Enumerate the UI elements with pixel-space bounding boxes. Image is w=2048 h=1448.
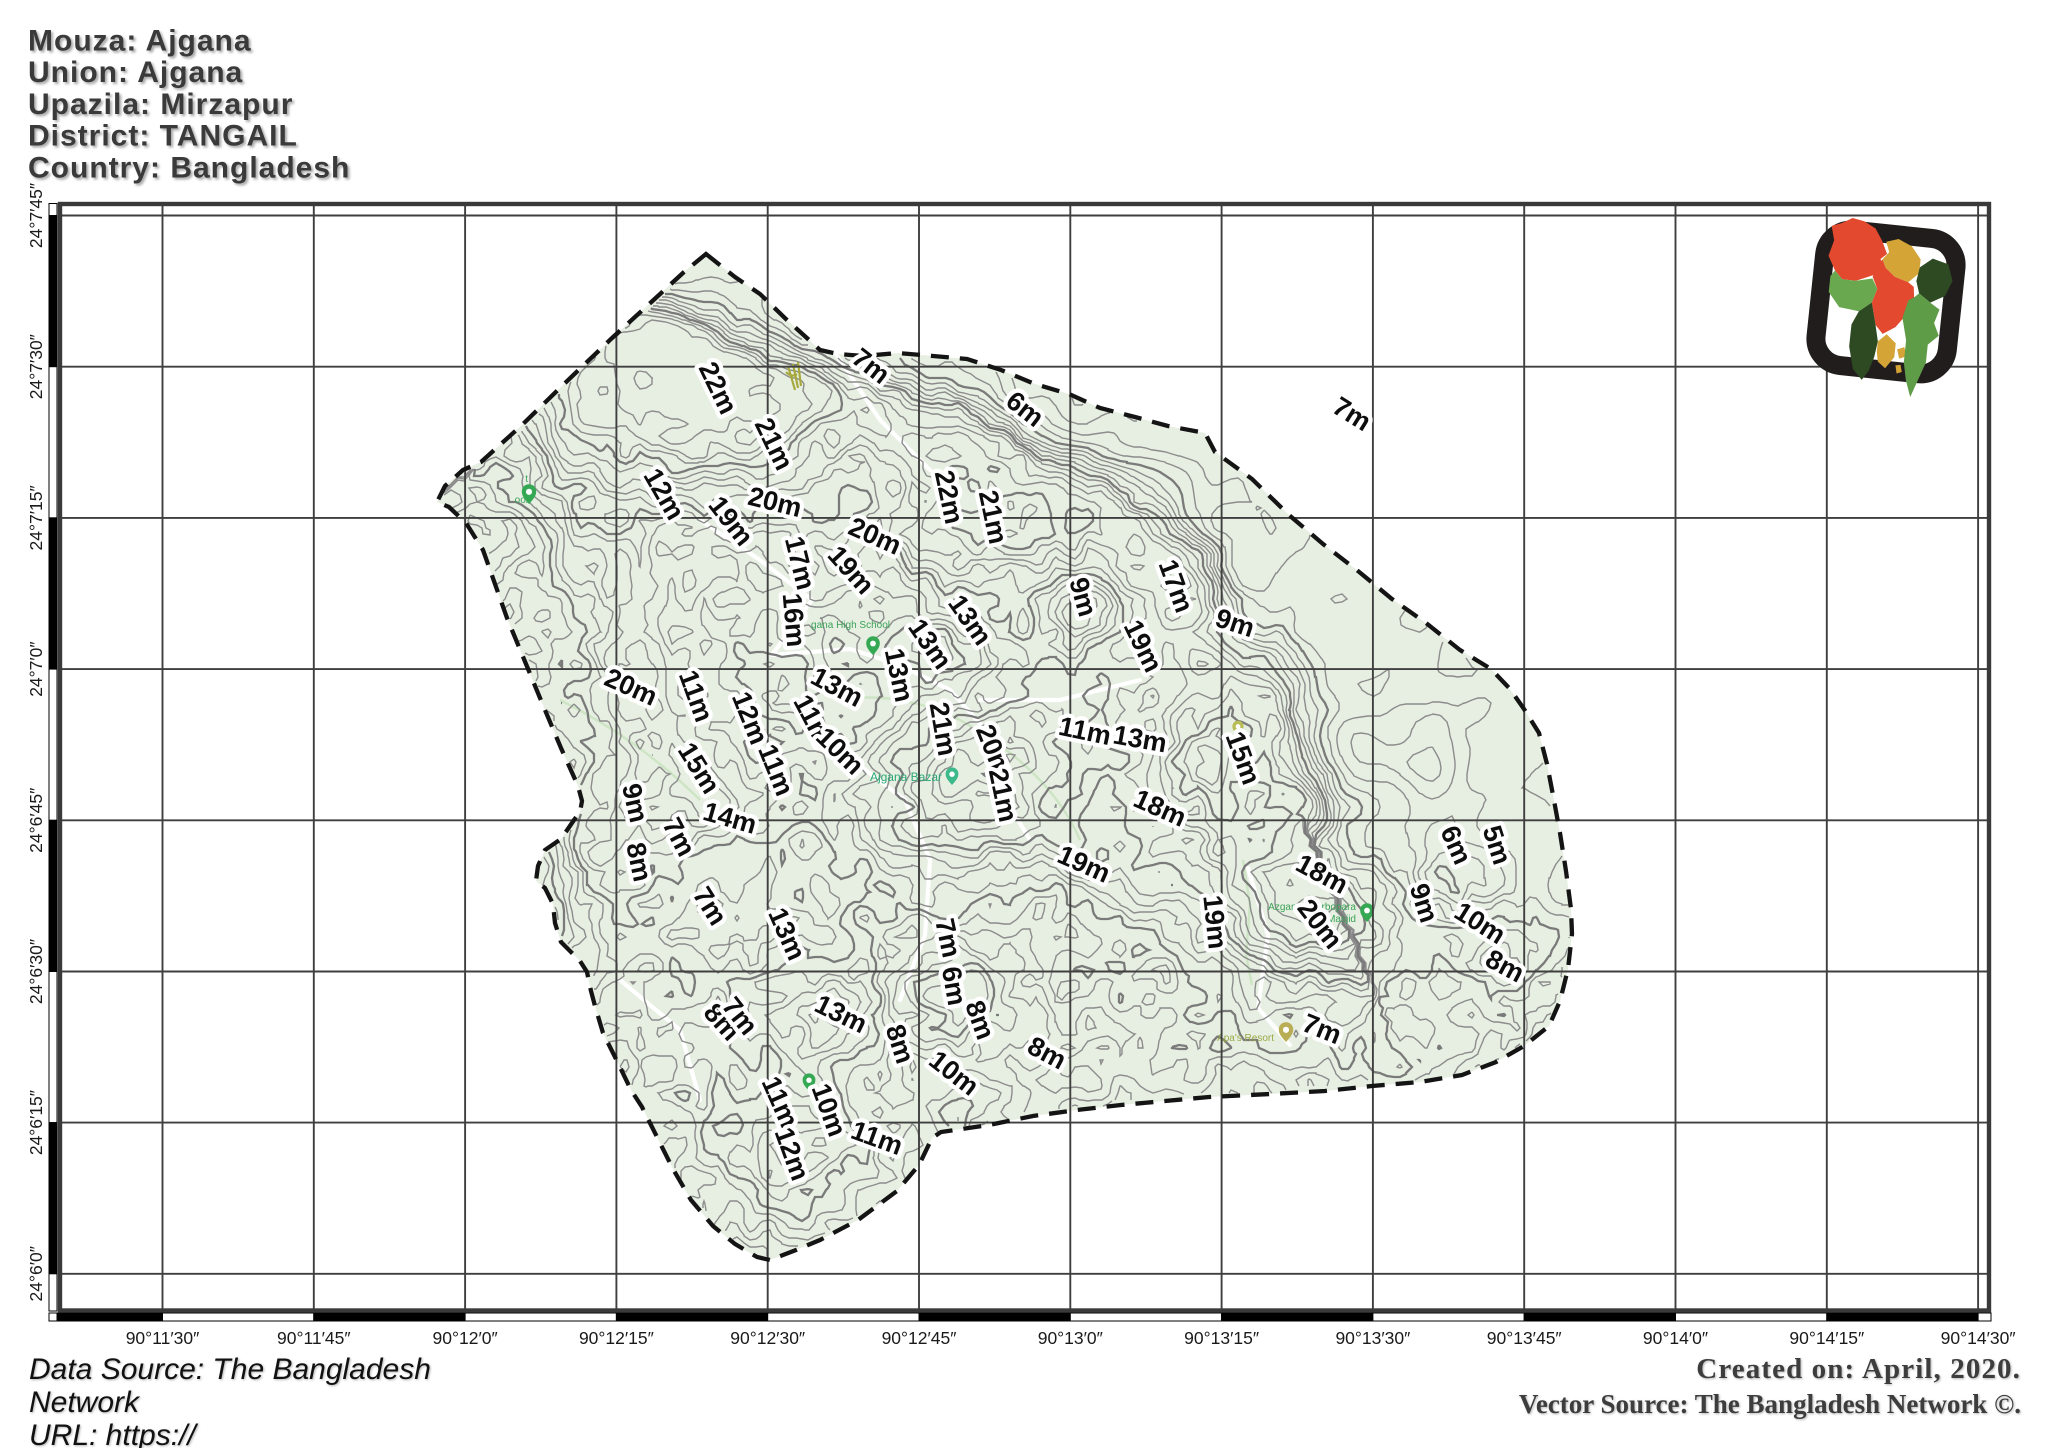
svg-text:Upazila: Mirzapur: Upazila: Mirzapur [28,88,293,121]
svg-text:90°12′15″: 90°12′15″ [579,1328,654,1348]
svg-text:90°13′45″: 90°13′45″ [1487,1328,1562,1348]
svg-text:90°14′0″: 90°14′0″ [1643,1328,1708,1348]
svg-text:90°12′45″: 90°12′45″ [882,1328,957,1348]
svg-text:90°11′30″: 90°11′30″ [126,1328,200,1348]
svg-text:24°6′30″: 24°6′30″ [26,939,46,1004]
svg-text:Ajgana Bazar: Ajgana Bazar [870,770,942,784]
svg-text:24°7′0″: 24°7′0″ [26,641,46,696]
svg-text:Union: Ajgana: Union: Ajgana [28,56,243,89]
svg-text:90°12′30″: 90°12′30″ [730,1328,805,1348]
svg-text:24°6′0″: 24°6′0″ [26,1246,46,1301]
svg-text:90°12′0″: 90°12′0″ [433,1328,498,1348]
svg-text:Country: Bangladesh: Country: Bangladesh [28,151,350,184]
svg-text:90°13′15″: 90°13′15″ [1184,1328,1259,1348]
svg-text:Mouza: Ajgana: Mouza: Ajgana [28,25,252,58]
svg-text:90°14′30″: 90°14′30″ [1941,1328,2016,1348]
svg-text:Apa's Resort: Apa's Resort [1217,1033,1274,1044]
svg-text:90°13′0″: 90°13′0″ [1038,1328,1103,1348]
svg-text:90°14′15″: 90°14′15″ [1789,1328,1864,1348]
svg-text:Created on: April, 2020.: Created on: April, 2020. [1696,1353,2021,1385]
svg-text:24°7′45″: 24°7′45″ [26,183,46,248]
svg-text:gana High School: gana High School [811,620,890,631]
svg-text:t: t [525,474,528,485]
svg-text:24°6′15″: 24°6′15″ [26,1090,46,1155]
svg-text:URL: https://: URL: https:// [29,1419,198,1448]
svg-text:16m: 16m [777,592,812,648]
svg-text:24°6′45″: 24°6′45″ [26,788,46,853]
svg-text:Data Source: The Bangladesh: Data Source: The Bangladesh [29,1353,431,1386]
svg-text:24°7′15″: 24°7′15″ [26,485,46,550]
svg-text:Vector Source: The Bangladesh: Vector Source: The Bangladesh Network ©. [1519,1389,2021,1419]
svg-text:Network: Network [29,1386,141,1419]
svg-text:24°7′30″: 24°7′30″ [26,334,46,399]
svg-text:90°13′30″: 90°13′30″ [1335,1328,1410,1348]
svg-text:District: TANGAIL: District: TANGAIL [28,120,298,153]
svg-text:19m: 19m [1197,894,1232,951]
svg-text:90°11′45″: 90°11′45″ [277,1328,351,1348]
